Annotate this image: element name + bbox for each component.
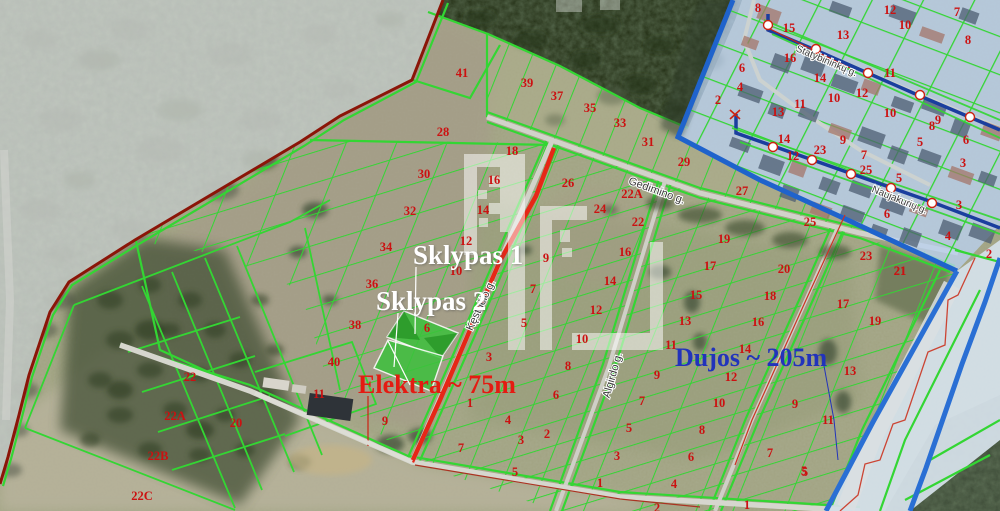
svg-text:32: 32: [404, 204, 417, 218]
svg-text:8: 8: [965, 33, 971, 47]
svg-text:15: 15: [783, 21, 796, 35]
svg-text:22A: 22A: [164, 409, 186, 423]
svg-text:26: 26: [562, 176, 575, 190]
svg-text:1: 1: [597, 476, 603, 490]
svg-text:10: 10: [713, 396, 726, 410]
svg-text:10: 10: [884, 106, 897, 120]
svg-text:27: 27: [736, 184, 749, 198]
svg-text:5: 5: [521, 316, 527, 330]
svg-text:3: 3: [486, 350, 492, 364]
svg-text:22: 22: [184, 370, 197, 384]
svg-text:20: 20: [230, 416, 243, 430]
svg-text:6: 6: [424, 321, 430, 335]
svg-text:3: 3: [956, 198, 962, 212]
svg-text:Sklypas 1: Sklypas 1: [413, 240, 523, 270]
svg-text:4: 4: [945, 229, 952, 243]
svg-text:4: 4: [671, 477, 678, 491]
svg-text:7: 7: [530, 282, 536, 296]
svg-text:22B: 22B: [148, 449, 169, 463]
svg-text:19: 19: [869, 314, 882, 328]
svg-text:1: 1: [744, 498, 750, 511]
svg-text:11: 11: [822, 413, 834, 427]
svg-text:9: 9: [840, 133, 846, 147]
svg-text:17: 17: [837, 297, 850, 311]
svg-text:6: 6: [963, 133, 969, 147]
svg-text:10: 10: [576, 332, 589, 346]
svg-text:Elektra ~ 75m: Elektra ~ 75m: [358, 370, 516, 399]
svg-text:8: 8: [565, 359, 571, 373]
svg-text:9: 9: [792, 397, 798, 411]
svg-text:20: 20: [778, 262, 791, 276]
svg-text:2: 2: [654, 501, 660, 511]
svg-text:16: 16: [752, 315, 765, 329]
svg-text:4: 4: [737, 80, 744, 94]
svg-text:Sklypas 2: Sklypas 2: [376, 286, 486, 316]
svg-text:38: 38: [349, 318, 362, 332]
svg-text:24: 24: [594, 202, 607, 216]
svg-text:6: 6: [884, 207, 890, 221]
svg-text:21: 21: [894, 264, 907, 278]
svg-text:14: 14: [604, 274, 617, 288]
svg-text:3: 3: [614, 449, 620, 463]
svg-text:25: 25: [860, 163, 873, 177]
svg-text:7: 7: [954, 5, 960, 19]
svg-text:2: 2: [986, 247, 992, 261]
svg-text:12: 12: [856, 86, 869, 100]
svg-text:8: 8: [755, 1, 761, 15]
svg-text:40: 40: [328, 355, 341, 369]
svg-text:7: 7: [639, 394, 645, 408]
svg-text:9: 9: [654, 368, 660, 382]
svg-text:11: 11: [313, 387, 325, 401]
svg-text:37: 37: [551, 89, 564, 103]
svg-text:16: 16: [619, 245, 632, 259]
svg-text:30: 30: [418, 167, 431, 181]
svg-text:12: 12: [590, 303, 603, 317]
svg-text:5: 5: [896, 171, 902, 185]
svg-text:41: 41: [456, 66, 469, 80]
svg-text:23: 23: [860, 249, 873, 263]
svg-text:3: 3: [518, 433, 524, 447]
svg-text:9: 9: [543, 251, 549, 265]
svg-text:13: 13: [679, 314, 692, 328]
svg-text:4: 4: [505, 413, 512, 427]
svg-text:9: 9: [382, 414, 388, 428]
svg-text:35: 35: [584, 101, 597, 115]
svg-text:29: 29: [678, 155, 691, 169]
svg-text:12: 12: [787, 149, 800, 163]
svg-text:10: 10: [899, 18, 912, 32]
svg-text:22C: 22C: [131, 489, 153, 503]
svg-text:6: 6: [739, 61, 745, 75]
svg-text:7: 7: [767, 446, 773, 460]
svg-text:5: 5: [626, 421, 632, 435]
svg-text:14: 14: [814, 71, 827, 85]
svg-text:2: 2: [544, 427, 550, 441]
svg-text:19: 19: [718, 232, 731, 246]
svg-text:Dujos ~ 205m: Dujos ~ 205m: [675, 343, 828, 372]
svg-text:25: 25: [804, 215, 817, 229]
svg-text:14: 14: [778, 132, 791, 146]
svg-text:8: 8: [699, 423, 705, 437]
svg-text:10: 10: [828, 91, 841, 105]
svg-text:9: 9: [935, 113, 941, 127]
svg-text:12: 12: [725, 370, 738, 384]
svg-text:22: 22: [632, 215, 645, 229]
svg-text:5: 5: [802, 465, 808, 479]
svg-text:13: 13: [837, 28, 850, 42]
svg-text:7: 7: [861, 148, 867, 162]
svg-text:34: 34: [380, 240, 393, 254]
svg-text:5: 5: [917, 135, 923, 149]
svg-text:7: 7: [458, 441, 464, 455]
svg-text:3: 3: [960, 156, 966, 170]
svg-text:13: 13: [844, 364, 857, 378]
svg-text:15: 15: [690, 288, 703, 302]
svg-text:16: 16: [488, 173, 501, 187]
svg-text:2: 2: [715, 93, 721, 107]
svg-text:18: 18: [764, 289, 777, 303]
svg-text:11: 11: [884, 66, 896, 80]
svg-text:13: 13: [772, 105, 785, 119]
svg-text:17: 17: [704, 259, 717, 273]
svg-text:18: 18: [506, 144, 519, 158]
svg-text:5: 5: [512, 465, 518, 479]
svg-text:28: 28: [437, 125, 450, 139]
svg-text:12: 12: [884, 3, 897, 17]
svg-text:11: 11: [794, 97, 806, 111]
svg-text:23: 23: [814, 143, 827, 157]
svg-text:31: 31: [642, 135, 655, 149]
svg-text:6: 6: [553, 388, 559, 402]
svg-text:39: 39: [521, 76, 534, 90]
svg-text:14: 14: [477, 203, 490, 217]
svg-text:6: 6: [688, 450, 694, 464]
svg-text:33: 33: [614, 116, 627, 130]
